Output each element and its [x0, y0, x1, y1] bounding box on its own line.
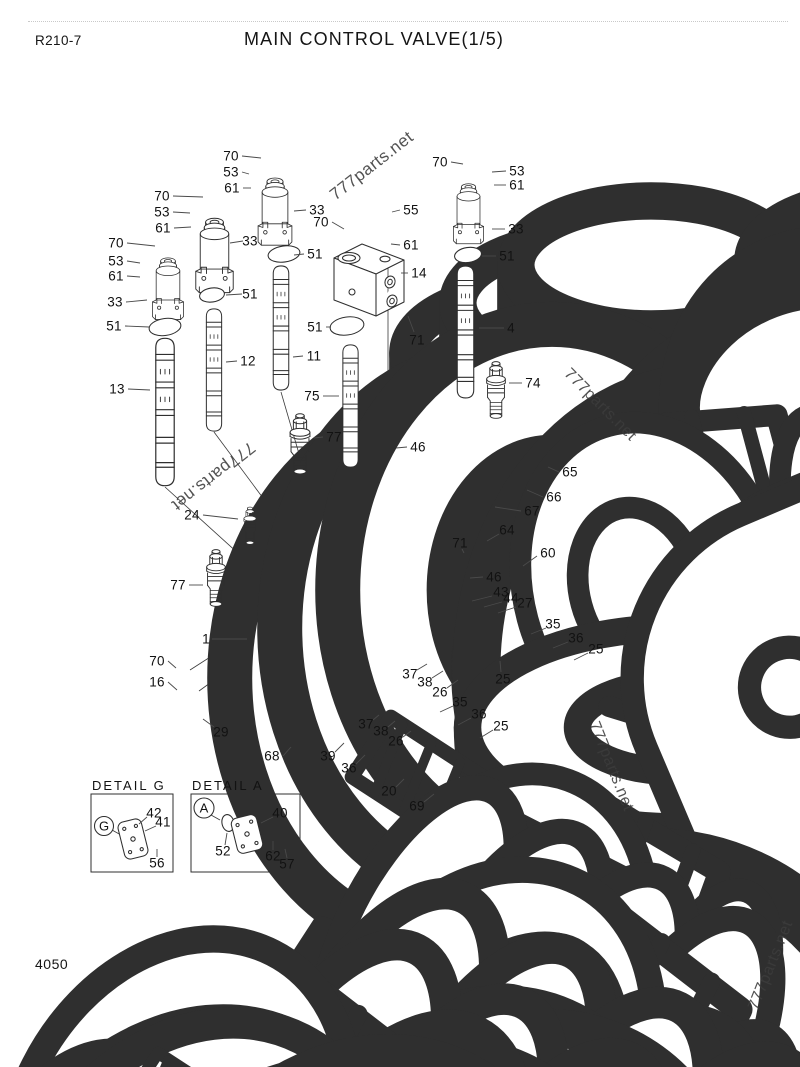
- callout-71: 71: [452, 536, 468, 551]
- callout-53: 53: [108, 254, 124, 269]
- callout-52: 52: [215, 844, 231, 859]
- callout-68: 68: [264, 749, 280, 764]
- callout-51: 51: [106, 319, 122, 334]
- callout-46: 46: [486, 570, 502, 585]
- callout-77: 77: [326, 430, 342, 445]
- callout-51: 51: [307, 247, 323, 262]
- callout-56: 56: [149, 856, 165, 871]
- callout-57: 57: [279, 857, 295, 872]
- callout-38: 38: [417, 675, 433, 690]
- callout-61: 61: [224, 181, 240, 196]
- callout-77: 77: [170, 578, 186, 593]
- callout-38: 38: [373, 724, 389, 739]
- leader-line-70: [173, 196, 203, 197]
- callout-70: 70: [223, 149, 239, 164]
- callout-67: 67: [524, 504, 540, 519]
- callout-33: 33: [242, 234, 258, 249]
- callout-27: 27: [517, 596, 533, 611]
- callout-61: 61: [509, 178, 525, 193]
- detail-a-title: DETAIL A: [192, 778, 264, 793]
- callout-26: 26: [432, 685, 448, 700]
- callout-70: 70: [313, 215, 329, 230]
- leader-line-33: [294, 210, 306, 211]
- callout-29: 29: [213, 725, 229, 740]
- callout-75: 75: [304, 389, 320, 404]
- callout-51: 51: [307, 320, 323, 335]
- callout-51: 51: [499, 249, 515, 264]
- leader-line-70: [332, 222, 344, 229]
- diagram-artwork: DETAIL G G DETAIL A A: [0, 178, 800, 1067]
- leader-line-53: [492, 171, 506, 172]
- callout-16: 16: [149, 675, 165, 690]
- callout-66: 66: [546, 490, 562, 505]
- detail-g-letter: G: [99, 819, 109, 834]
- callout-53: 53: [509, 164, 525, 179]
- callout-61: 61: [108, 269, 124, 284]
- callout-51: 51: [242, 287, 258, 302]
- callout-20: 20: [381, 784, 397, 799]
- watermark: 777parts.net: [326, 127, 417, 204]
- leader-line-12: [226, 361, 237, 362]
- spool-13: [156, 338, 174, 485]
- leader-line-53: [173, 212, 190, 213]
- leader-line-33: [126, 300, 147, 302]
- callout-41: 41: [155, 815, 171, 830]
- callout-46: 46: [410, 440, 426, 455]
- construction-line: [211, 815, 220, 820]
- callout-11: 11: [307, 349, 322, 364]
- leader-line-61: [127, 276, 140, 277]
- callout-37: 37: [402, 667, 418, 682]
- callout-74: 74: [525, 376, 541, 391]
- callout-25: 25: [588, 642, 604, 657]
- callout-55: 55: [403, 203, 419, 218]
- callout-65: 65: [562, 465, 578, 480]
- spool-4: [457, 266, 473, 398]
- callout-37: 37: [358, 717, 374, 732]
- leader-line-61: [174, 227, 191, 228]
- callout-60: 60: [540, 546, 556, 561]
- callout-36: 36: [341, 761, 357, 776]
- callout-25: 25: [493, 719, 509, 734]
- callout-35: 35: [452, 695, 468, 710]
- callout-64: 64: [499, 523, 515, 538]
- spool-12: [206, 309, 221, 431]
- callout-1: 1: [202, 632, 210, 647]
- leader-line-13: [128, 389, 150, 390]
- leader-line-33: [230, 241, 243, 243]
- leader-line-16: [168, 682, 177, 690]
- callout-70: 70: [108, 236, 124, 251]
- callout-36: 36: [568, 631, 584, 646]
- leader-line-11: [293, 356, 303, 357]
- callout-70: 70: [154, 189, 170, 204]
- spool-75: [343, 345, 358, 467]
- callout-33: 33: [508, 222, 524, 237]
- callout-53: 53: [154, 205, 170, 220]
- spool-11: [273, 266, 289, 390]
- leader-line-70: [168, 661, 176, 668]
- callout-70: 70: [149, 654, 165, 669]
- callout-25: 25: [495, 672, 511, 687]
- callout-26: 26: [388, 734, 404, 749]
- callout-61: 61: [403, 238, 419, 253]
- detail-a-letter: A: [200, 801, 209, 816]
- callout-36: 36: [471, 707, 487, 722]
- leader-line-53: [127, 261, 140, 263]
- callout-61: 61: [155, 221, 171, 236]
- callout-53: 53: [223, 165, 239, 180]
- callout-39: 39: [320, 749, 336, 764]
- leader-line-51: [125, 326, 149, 327]
- leader-line-70: [242, 156, 261, 158]
- exploded-view-diagram: DETAIL G G DETAIL A A: [0, 0, 800, 1067]
- callout-4: 4: [507, 321, 515, 336]
- leader-line-70: [451, 162, 463, 164]
- callout-69: 69: [409, 799, 425, 814]
- parts-diagram-page: R210-7 MAIN CONTROL VALVE(1/5) 4050: [0, 0, 800, 1067]
- leader-line-53: [242, 172, 249, 174]
- callout-70: 70: [432, 155, 448, 170]
- callout-33: 33: [107, 295, 123, 310]
- leader-line-55: [392, 210, 400, 212]
- callout-14: 14: [411, 266, 427, 281]
- callout-35: 35: [545, 617, 561, 632]
- detail-g-title: DETAIL G: [92, 778, 166, 793]
- watermark: 777parts.net: [168, 438, 259, 515]
- callout-13: 13: [109, 382, 125, 397]
- leader-line-70: [127, 243, 155, 246]
- leader-line-24: [203, 515, 238, 519]
- callout-40: 40: [272, 806, 288, 821]
- leader-line-51: [226, 294, 242, 295]
- callout-12: 12: [240, 354, 256, 369]
- leader-line-61: [391, 244, 400, 245]
- callout-71: 71: [409, 333, 425, 348]
